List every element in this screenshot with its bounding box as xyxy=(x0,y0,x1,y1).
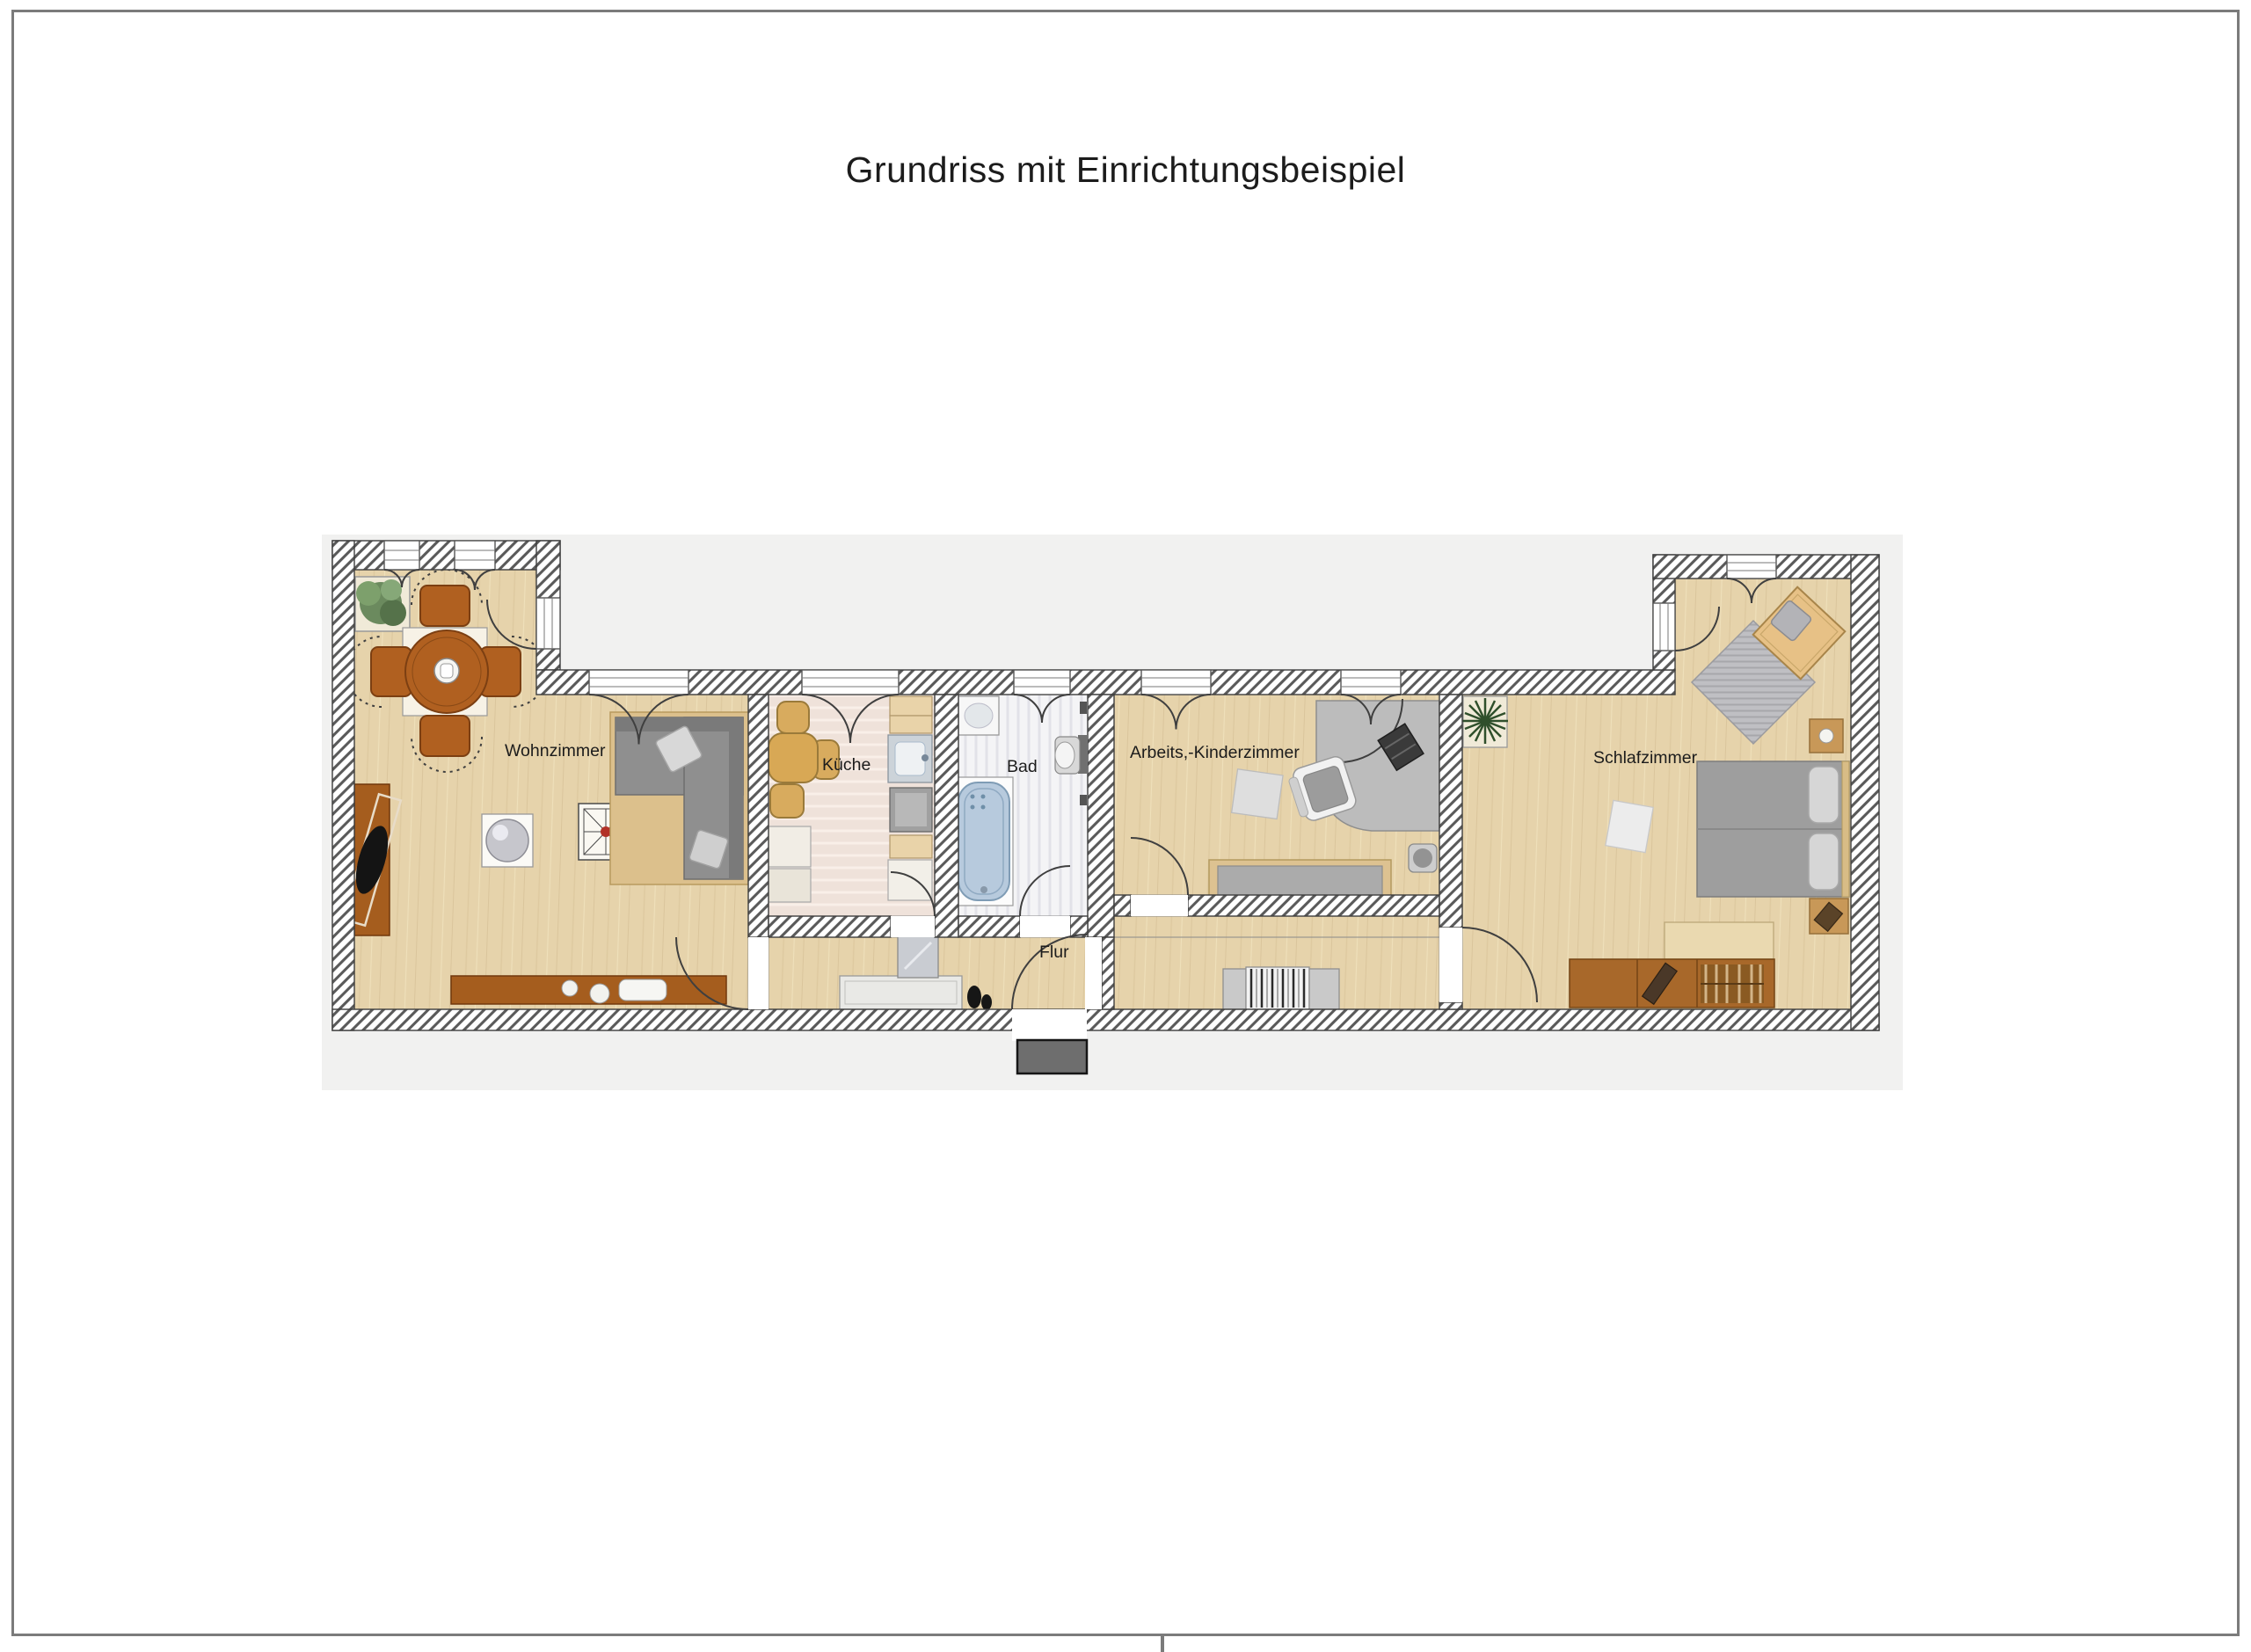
side-table-lamp xyxy=(482,814,533,867)
wall xyxy=(1188,895,1439,916)
dining-chair-south xyxy=(420,716,470,756)
wall xyxy=(536,670,1675,695)
kitchen-table xyxy=(769,733,818,782)
wall xyxy=(748,695,769,937)
tv-lowboard xyxy=(451,976,726,1004)
wall xyxy=(958,916,1020,937)
dresser xyxy=(1570,959,1774,1008)
washbasin xyxy=(958,696,999,735)
mirror xyxy=(898,935,938,978)
bed-pillow xyxy=(1809,767,1839,823)
wall xyxy=(1088,695,1114,937)
room-label-flur: Flur xyxy=(1039,942,1069,962)
wall xyxy=(1439,1002,1462,1009)
room-label-bad: Bad xyxy=(1007,757,1038,776)
double-bed xyxy=(1697,761,1849,897)
wall-fixture xyxy=(1080,795,1087,805)
bathtub xyxy=(955,777,1013,906)
toilet xyxy=(1055,735,1087,774)
bed-pillow xyxy=(1809,833,1839,890)
nightstand-bottom xyxy=(1810,899,1848,934)
open-wardrobe xyxy=(1223,967,1339,1009)
wall xyxy=(332,541,560,570)
dining-chair-north xyxy=(420,586,470,626)
wall xyxy=(769,916,891,937)
wall xyxy=(332,1009,1879,1030)
nightstand-top xyxy=(1810,719,1843,753)
bench xyxy=(1665,922,1774,959)
room-label-wohnzimmer: Wohnzimmer xyxy=(505,741,606,761)
doormat xyxy=(1017,1040,1087,1073)
console-table xyxy=(840,976,962,1009)
kitchen-cupboards xyxy=(763,826,811,902)
room-label-arbeitszimmer: Arbeits,-Kinderzimmer xyxy=(1130,743,1300,762)
doorway-flur xyxy=(1085,937,1102,1009)
kitchen-chair xyxy=(770,784,804,818)
floorplan: Wohnzimmer Küche Bad Arbeits,-Kinderzimm… xyxy=(0,0,2251,1652)
wall xyxy=(1439,695,1462,928)
kitchen-chair xyxy=(777,702,809,733)
potted-plant-star xyxy=(1462,696,1508,747)
wall xyxy=(332,541,354,1030)
floor-flur-ost xyxy=(1114,916,1439,937)
wall xyxy=(1114,895,1131,916)
wall-stub xyxy=(1102,937,1114,1009)
wall xyxy=(935,695,958,937)
white-rug xyxy=(1606,800,1653,852)
small-rug xyxy=(1232,769,1283,819)
room-label-kueche: Küche xyxy=(822,755,871,775)
room-label-schlafzimmer: Schlafzimmer xyxy=(1593,748,1698,768)
kitchen-counter xyxy=(888,696,932,900)
stool xyxy=(1409,844,1437,872)
wall-fixture xyxy=(1080,702,1087,714)
wall xyxy=(1851,555,1879,1030)
corner-sofa xyxy=(610,712,748,884)
